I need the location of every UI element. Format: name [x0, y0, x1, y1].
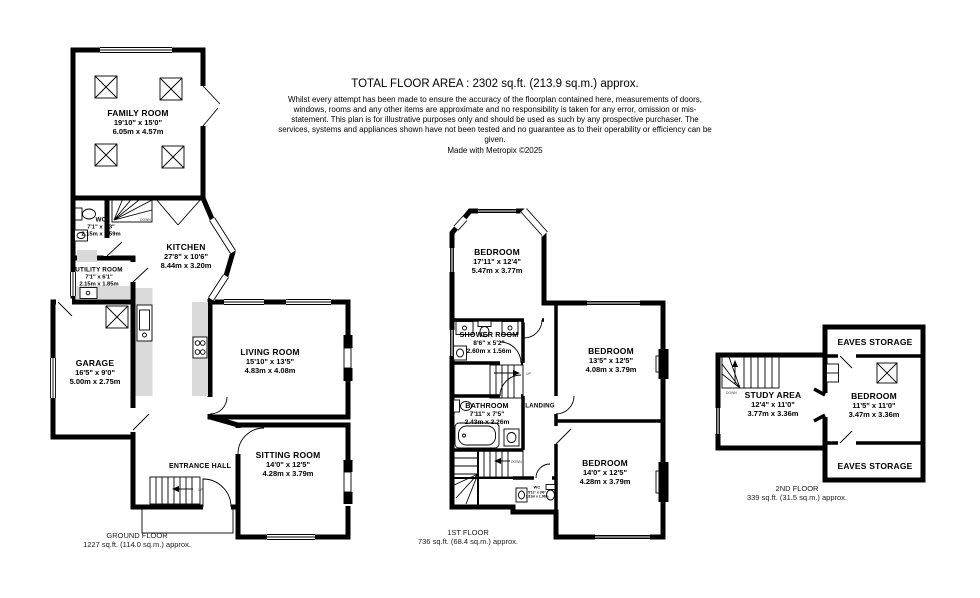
sitting-room [238, 425, 348, 537]
skylight-icon [877, 363, 897, 383]
room-label-eaves-storage-bottom: EAVES STORAGE [837, 461, 912, 471]
room-label-sitting-room: SITTING ROOM 14'0" x 12'5" 4.28m x 3.79m [256, 450, 321, 478]
room-label-shower-room: SHOWER ROOM 8'6" x 5'2" 2.60m x 1.56m [460, 331, 519, 355]
stairs-up-label: UP [198, 488, 203, 492]
floor-label-second: 2ND FLOOR 339 sq.ft. (31.5 sq.m.) approx… [747, 485, 847, 503]
header: TOTAL FLOOR AREA : 2302 sq.ft. (213.9 sq… [255, 78, 735, 155]
fireplace-icon [344, 335, 354, 506]
floor-label-first: 1ST FLOOR 736 sq.ft. (68.4 sq.m.) approx… [418, 529, 518, 547]
room-label-utility-room: UTILITY ROOM 7'1" x 6'1" 2.15m x 1.85m [75, 266, 122, 287]
window [716, 408, 721, 434]
stairs-down-label: DOWN [511, 460, 522, 464]
disclaimer-text: Whilst every attempt has been made to en… [275, 95, 715, 145]
room-label-garage: GARAGE 16'5" x 9'0" 5.00m x 2.75m [70, 358, 121, 386]
room-label-living-room: LIVING ROOM 15'10" x 13'5" 4.83m x 4.08m [240, 347, 299, 375]
patio-door [200, 86, 221, 126]
stairs-up-label: UP [526, 372, 531, 376]
room-label-entrance-hall: ENTRANCE HALL [169, 463, 231, 471]
room-label-study-area: STUDY AREA 12'4" x 11'0" 3.77m x 3.36m [745, 390, 802, 418]
floor-label-ground: GROUND FLOOR 1227 sq.ft. (114.0 sq.m.) a… [83, 532, 191, 550]
room-label-eaves-storage-top: EAVES STORAGE [837, 337, 912, 347]
hob-icon [193, 337, 207, 358]
room-label-landing: LANDING [525, 402, 555, 409]
cupboard-icon [827, 364, 839, 382]
credit-text: Made with Metropix ©2025 [255, 146, 735, 155]
floorplan-page: DOWN UP [0, 0, 980, 598]
room-label-bedroom-3: BEDROOM 14'0" x 12'5" 4.28m x 3.79m [580, 458, 631, 486]
stairs-down-label: DOWN [140, 218, 151, 222]
room-label-wc-small: WC 5'11" x 3'6" 1.81m x 1.06m [526, 486, 549, 499]
kitchen-sink-icon [137, 305, 152, 341]
room-label-bedroom-2: BEDROOM 13'5" x 12'5" 4.08m x 3.79m [586, 346, 637, 374]
stairs-down-label: DOWN [726, 391, 737, 395]
room-label-kitchen: KITCHEN 27'8" x 10'6" 8.44m x 3.20m [161, 242, 212, 270]
room-label-wc: WC 7'1" x 5'3" 2.15m x 1.59m [81, 216, 120, 237]
room-label-bathroom: BATHROOM 7'11" x 7'5" 2.43m x 2.26m [465, 402, 510, 426]
page-title: TOTAL FLOOR AREA : 2302 sq.ft. (213.9 sq… [255, 78, 735, 90]
porch-outline [142, 507, 233, 533]
room-label-bedroom-1: BEDROOM 17'11" x 12'4" 5.47m x 3.77m [472, 247, 523, 275]
room-label-bedroom-2f: BEDROOM 11'5" x 11'0" 3.47m x 3.36m [849, 391, 900, 419]
utility-sink-icon [80, 288, 97, 299]
room-label-family-room: FAMILY ROOM 19'10" x 15'0" 6.05m x 4.57m [107, 108, 168, 136]
